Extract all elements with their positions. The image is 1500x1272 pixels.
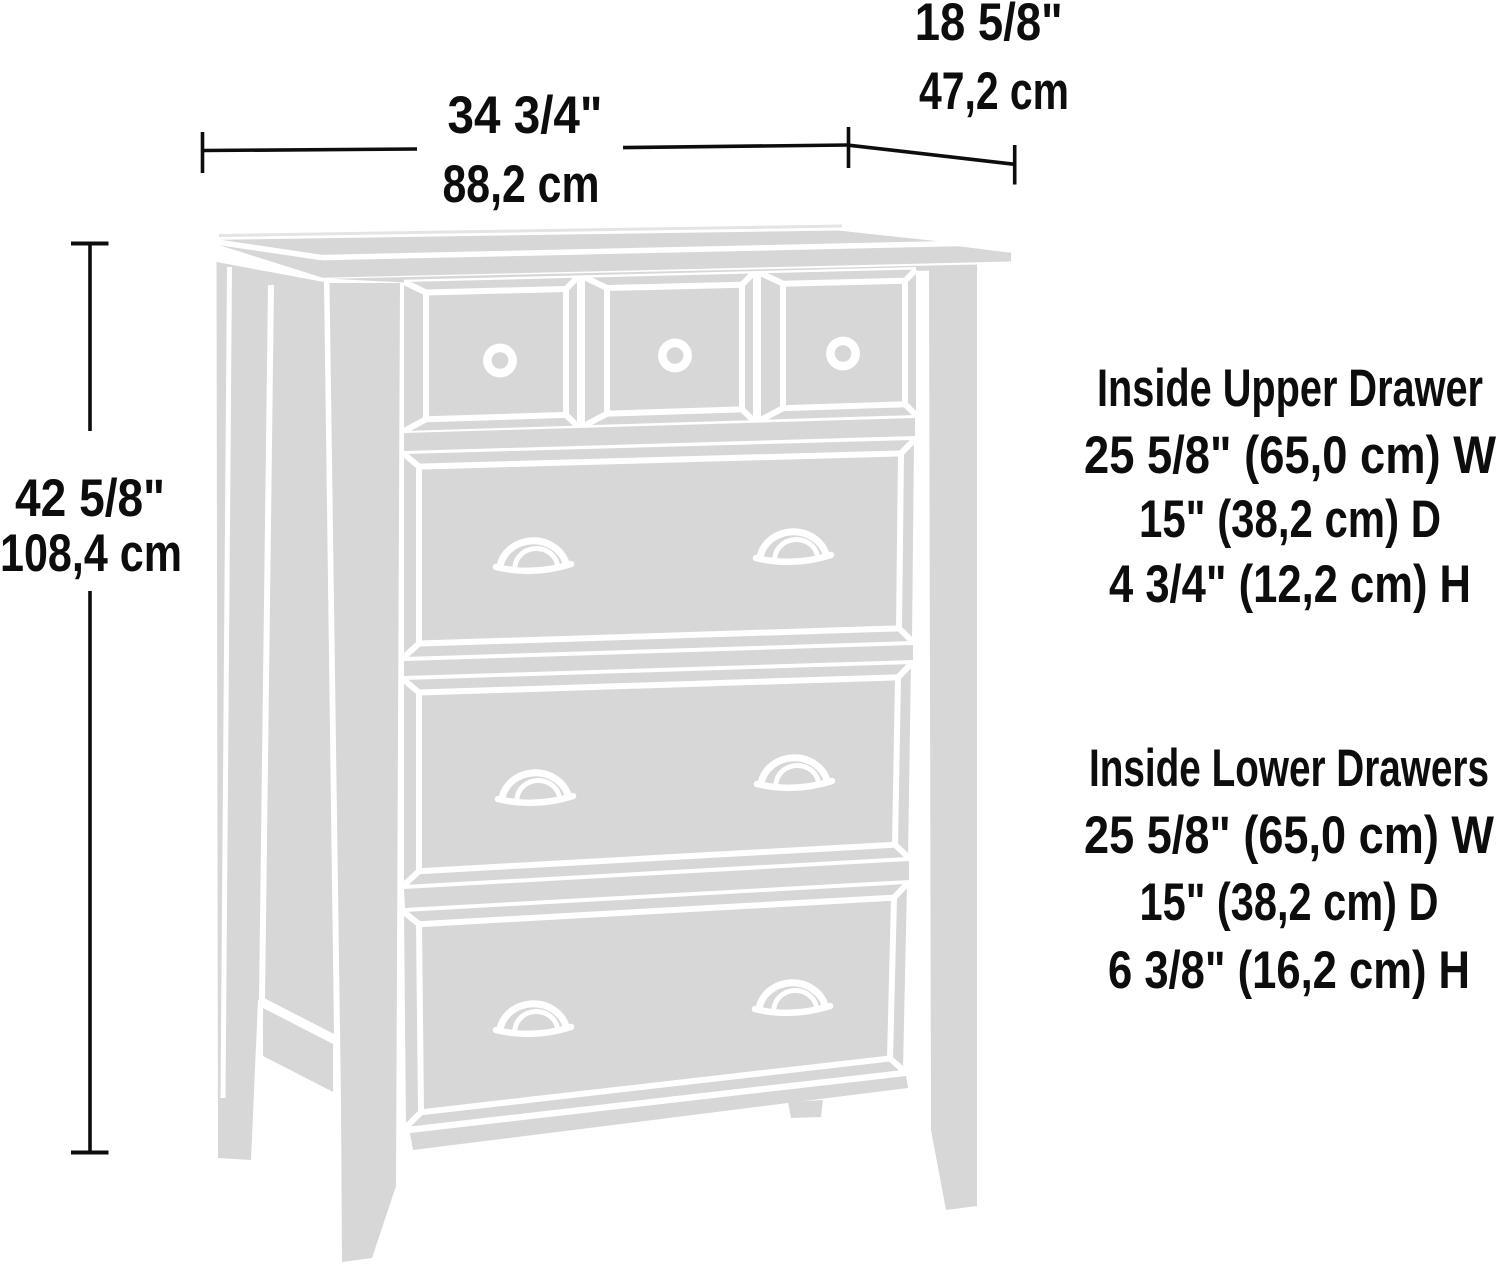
svg-text:42 5/8": 42 5/8" bbox=[15, 469, 165, 528]
svg-text:4 3/4" (12,2 cm) H: 4 3/4" (12,2 cm) H bbox=[1109, 555, 1471, 614]
svg-text:47,2 cm: 47,2 cm bbox=[919, 62, 1069, 121]
svg-text:15" (38,2 cm) D: 15" (38,2 cm) D bbox=[1140, 873, 1439, 932]
svg-text:88,2 cm: 88,2 cm bbox=[443, 155, 600, 214]
svg-text:25 5/8" (65,0 cm) W: 25 5/8" (65,0 cm) W bbox=[1084, 426, 1496, 485]
svg-text:6 3/8" (16,2 cm) H: 6 3/8" (16,2 cm) H bbox=[1108, 941, 1470, 1000]
svg-text:Inside Lower Drawers: Inside Lower Drawers bbox=[1089, 739, 1489, 798]
svg-text:34 3/4": 34 3/4" bbox=[448, 86, 603, 145]
svg-text:Inside Upper Drawer: Inside Upper Drawer bbox=[1097, 359, 1483, 418]
svg-text:18 5/8": 18 5/8" bbox=[915, 0, 1063, 52]
svg-text:15" (38,2 cm) D: 15" (38,2 cm) D bbox=[1139, 490, 1441, 549]
svg-text:108,4 cm: 108,4 cm bbox=[0, 524, 182, 583]
svg-text:25 5/8" (65,0 cm) W: 25 5/8" (65,0 cm) W bbox=[1084, 806, 1494, 865]
